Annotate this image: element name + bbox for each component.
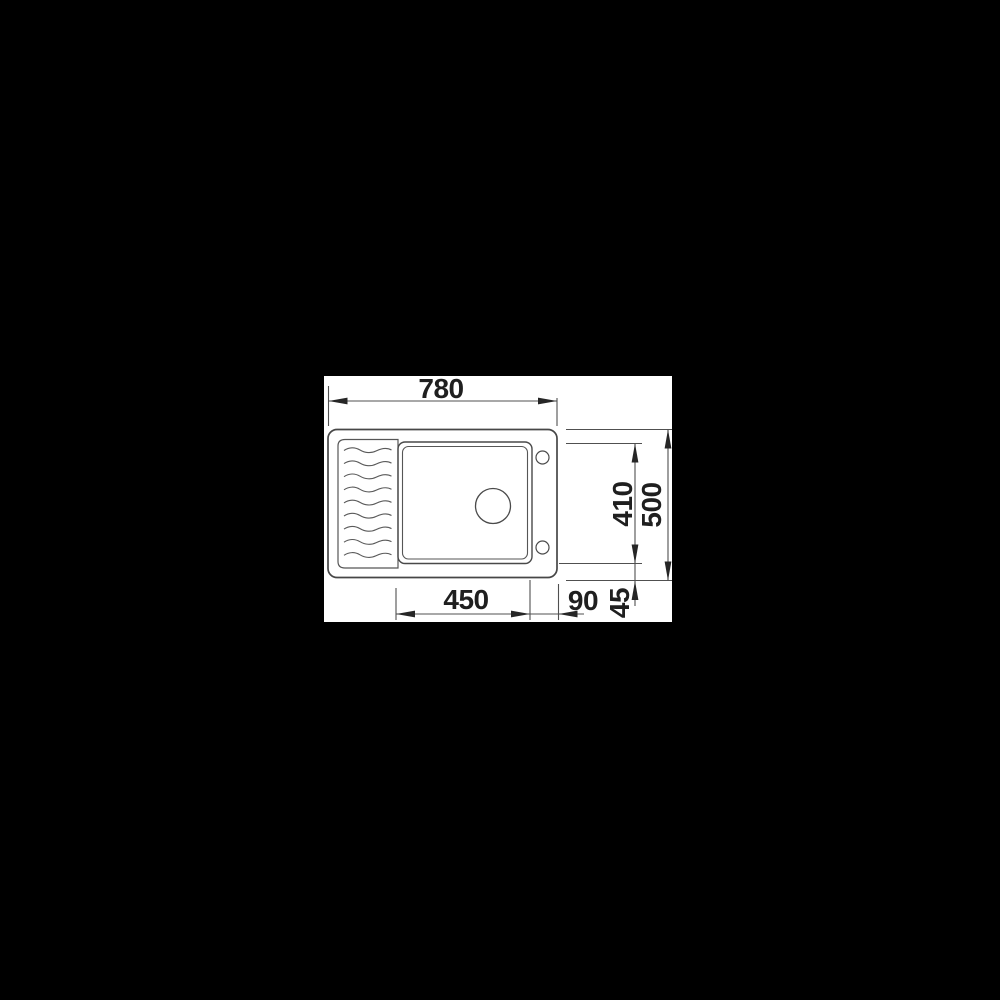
dim-label-overall-depth: 500 xyxy=(638,482,666,527)
drain-hole xyxy=(476,489,511,524)
drawing-panel: 780 450 90 500 410 45 xyxy=(324,376,672,622)
arrowhead-500-bottom xyxy=(665,562,672,581)
dim-label-tap-ledge: 90 xyxy=(568,587,598,615)
dim-label-overall-width: 780 xyxy=(418,375,463,403)
arrowhead-780-right xyxy=(538,398,557,405)
black-background: 780 450 90 500 410 45 xyxy=(0,0,1000,1000)
arrowhead-410-bottom xyxy=(632,545,639,564)
arrowhead-780-left xyxy=(329,398,348,405)
drainboard-waves xyxy=(344,448,392,558)
bowl-outer-rim xyxy=(398,442,532,564)
arrowhead-450-right xyxy=(511,611,530,618)
dim-label-bowl-width: 450 xyxy=(443,586,488,614)
tap-hole-top xyxy=(536,451,549,464)
dim-label-bowl-depth: 410 xyxy=(609,481,637,526)
tap-hole-bottom xyxy=(536,541,549,554)
bowl-inner-rim xyxy=(403,447,528,560)
arrowhead-450-left xyxy=(396,611,415,618)
drainboard-outline xyxy=(338,440,398,569)
arrowhead-500-top xyxy=(665,430,672,449)
dim-label-rim-offset: 45 xyxy=(606,588,634,618)
arrowhead-410-top xyxy=(632,444,639,463)
